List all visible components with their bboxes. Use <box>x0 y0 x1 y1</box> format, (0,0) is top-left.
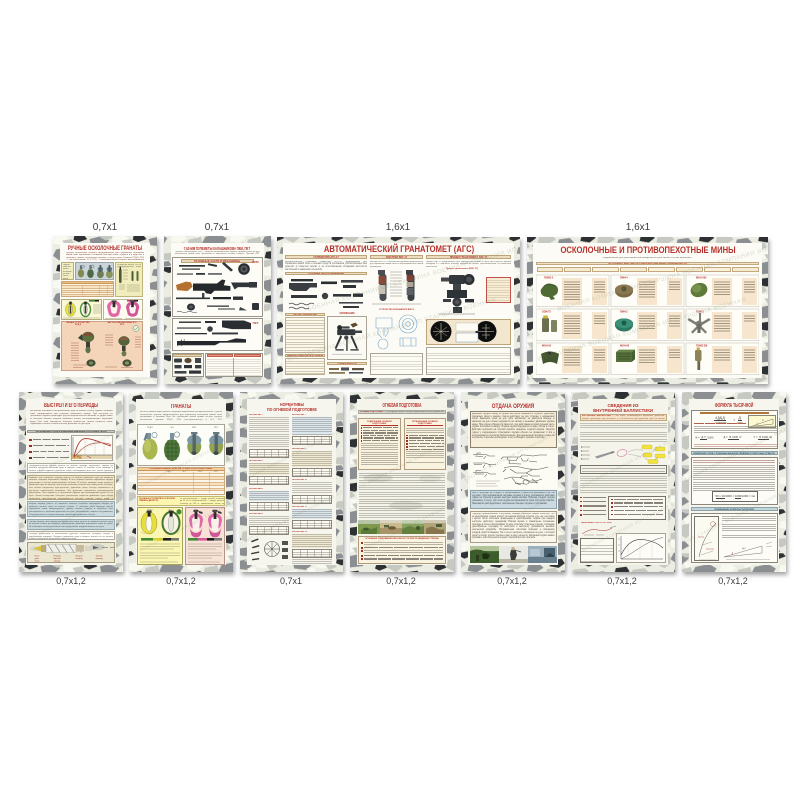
svg-text:ПМН-4: ПМН-4 <box>620 277 628 280</box>
svg-text:МОН-90: МОН-90 <box>620 345 630 348</box>
svg-text:РГД-5: РГД-5 <box>147 427 153 429</box>
svg-text:Д: Д <box>762 419 764 421</box>
svg-text:МОН-200: МОН-200 <box>696 277 707 280</box>
svg-text:ПМН-2: ПМН-2 <box>620 311 628 314</box>
svg-text:срыв: срыв <box>35 561 41 563</box>
svg-text:ОЗМ-72: ОЗМ-72 <box>542 311 551 314</box>
svg-text:РГН: РГН <box>192 427 196 429</box>
svg-text:период: период <box>96 558 104 560</box>
svg-text:Д=?: Д=? <box>742 548 747 550</box>
svg-text:МОН-50: МОН-50 <box>542 345 552 348</box>
svg-text:РГО: РГО <box>214 427 218 429</box>
svg-text:ПОМЗ-2М: ПОМЗ-2М <box>696 345 707 348</box>
svg-text:период: период <box>76 558 84 560</box>
svg-text:Ф-1: Ф-1 <box>170 426 174 429</box>
svg-text:ПОМЗ-2: ПОМЗ-2 <box>544 277 554 280</box>
svg-text:заряда: заряда <box>54 561 62 563</box>
